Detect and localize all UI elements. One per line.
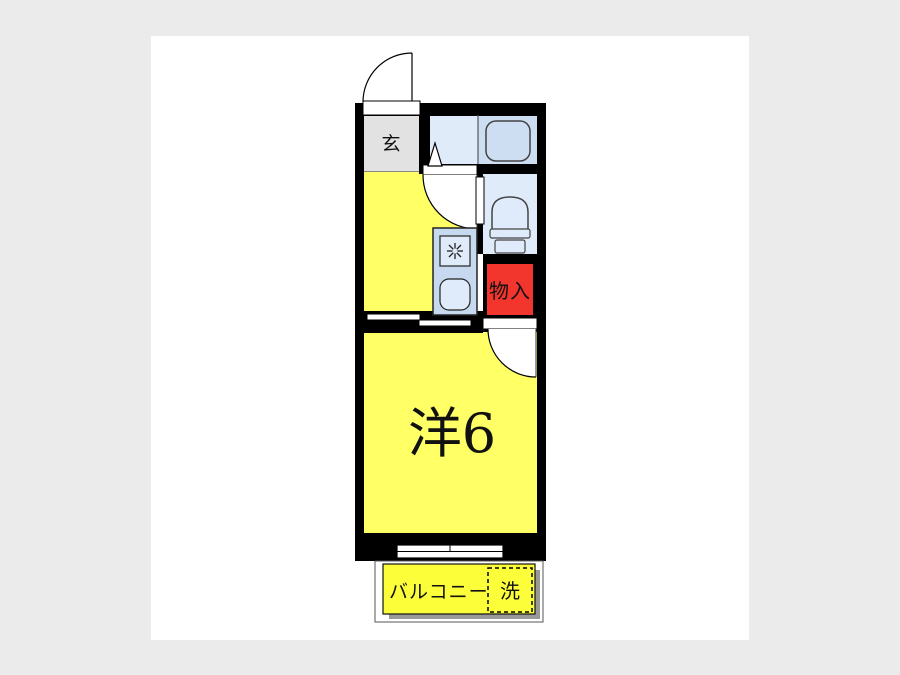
sliding-door-rail-right: [419, 320, 471, 326]
floorplan-page: 玄 物入 洋6 バルコニー 洗: [0, 0, 900, 675]
wall-entrance-washroom: [419, 103, 430, 172]
floorplan-canvas: 玄 物入 洋6 バルコニー 洗: [0, 0, 900, 675]
kitchen-sink: [440, 279, 470, 310]
kitchen-unit: [433, 228, 477, 315]
toilet-seat: [490, 229, 530, 238]
entrance-label: 玄: [381, 133, 400, 155]
toilet-icon: [490, 197, 530, 253]
balcony-label: バルコニー: [389, 581, 489, 603]
main-room-door-threshold: [483, 318, 537, 329]
sliding-door-rail-left: [367, 314, 420, 320]
main-room-label: 洋6: [408, 402, 496, 465]
bathtub-icon: [486, 121, 530, 161]
balcony-window-icon: [397, 545, 503, 558]
washer-label: 洗: [500, 579, 520, 603]
wall-left: [355, 103, 364, 561]
toilet-tank: [495, 240, 525, 253]
toilet-bowl: [492, 197, 528, 231]
stove-burner-center: [453, 249, 458, 254]
entrance-door-threshold: [363, 101, 420, 115]
toilet-door-opening: [476, 177, 484, 224]
storage-label: 物入: [489, 279, 531, 303]
